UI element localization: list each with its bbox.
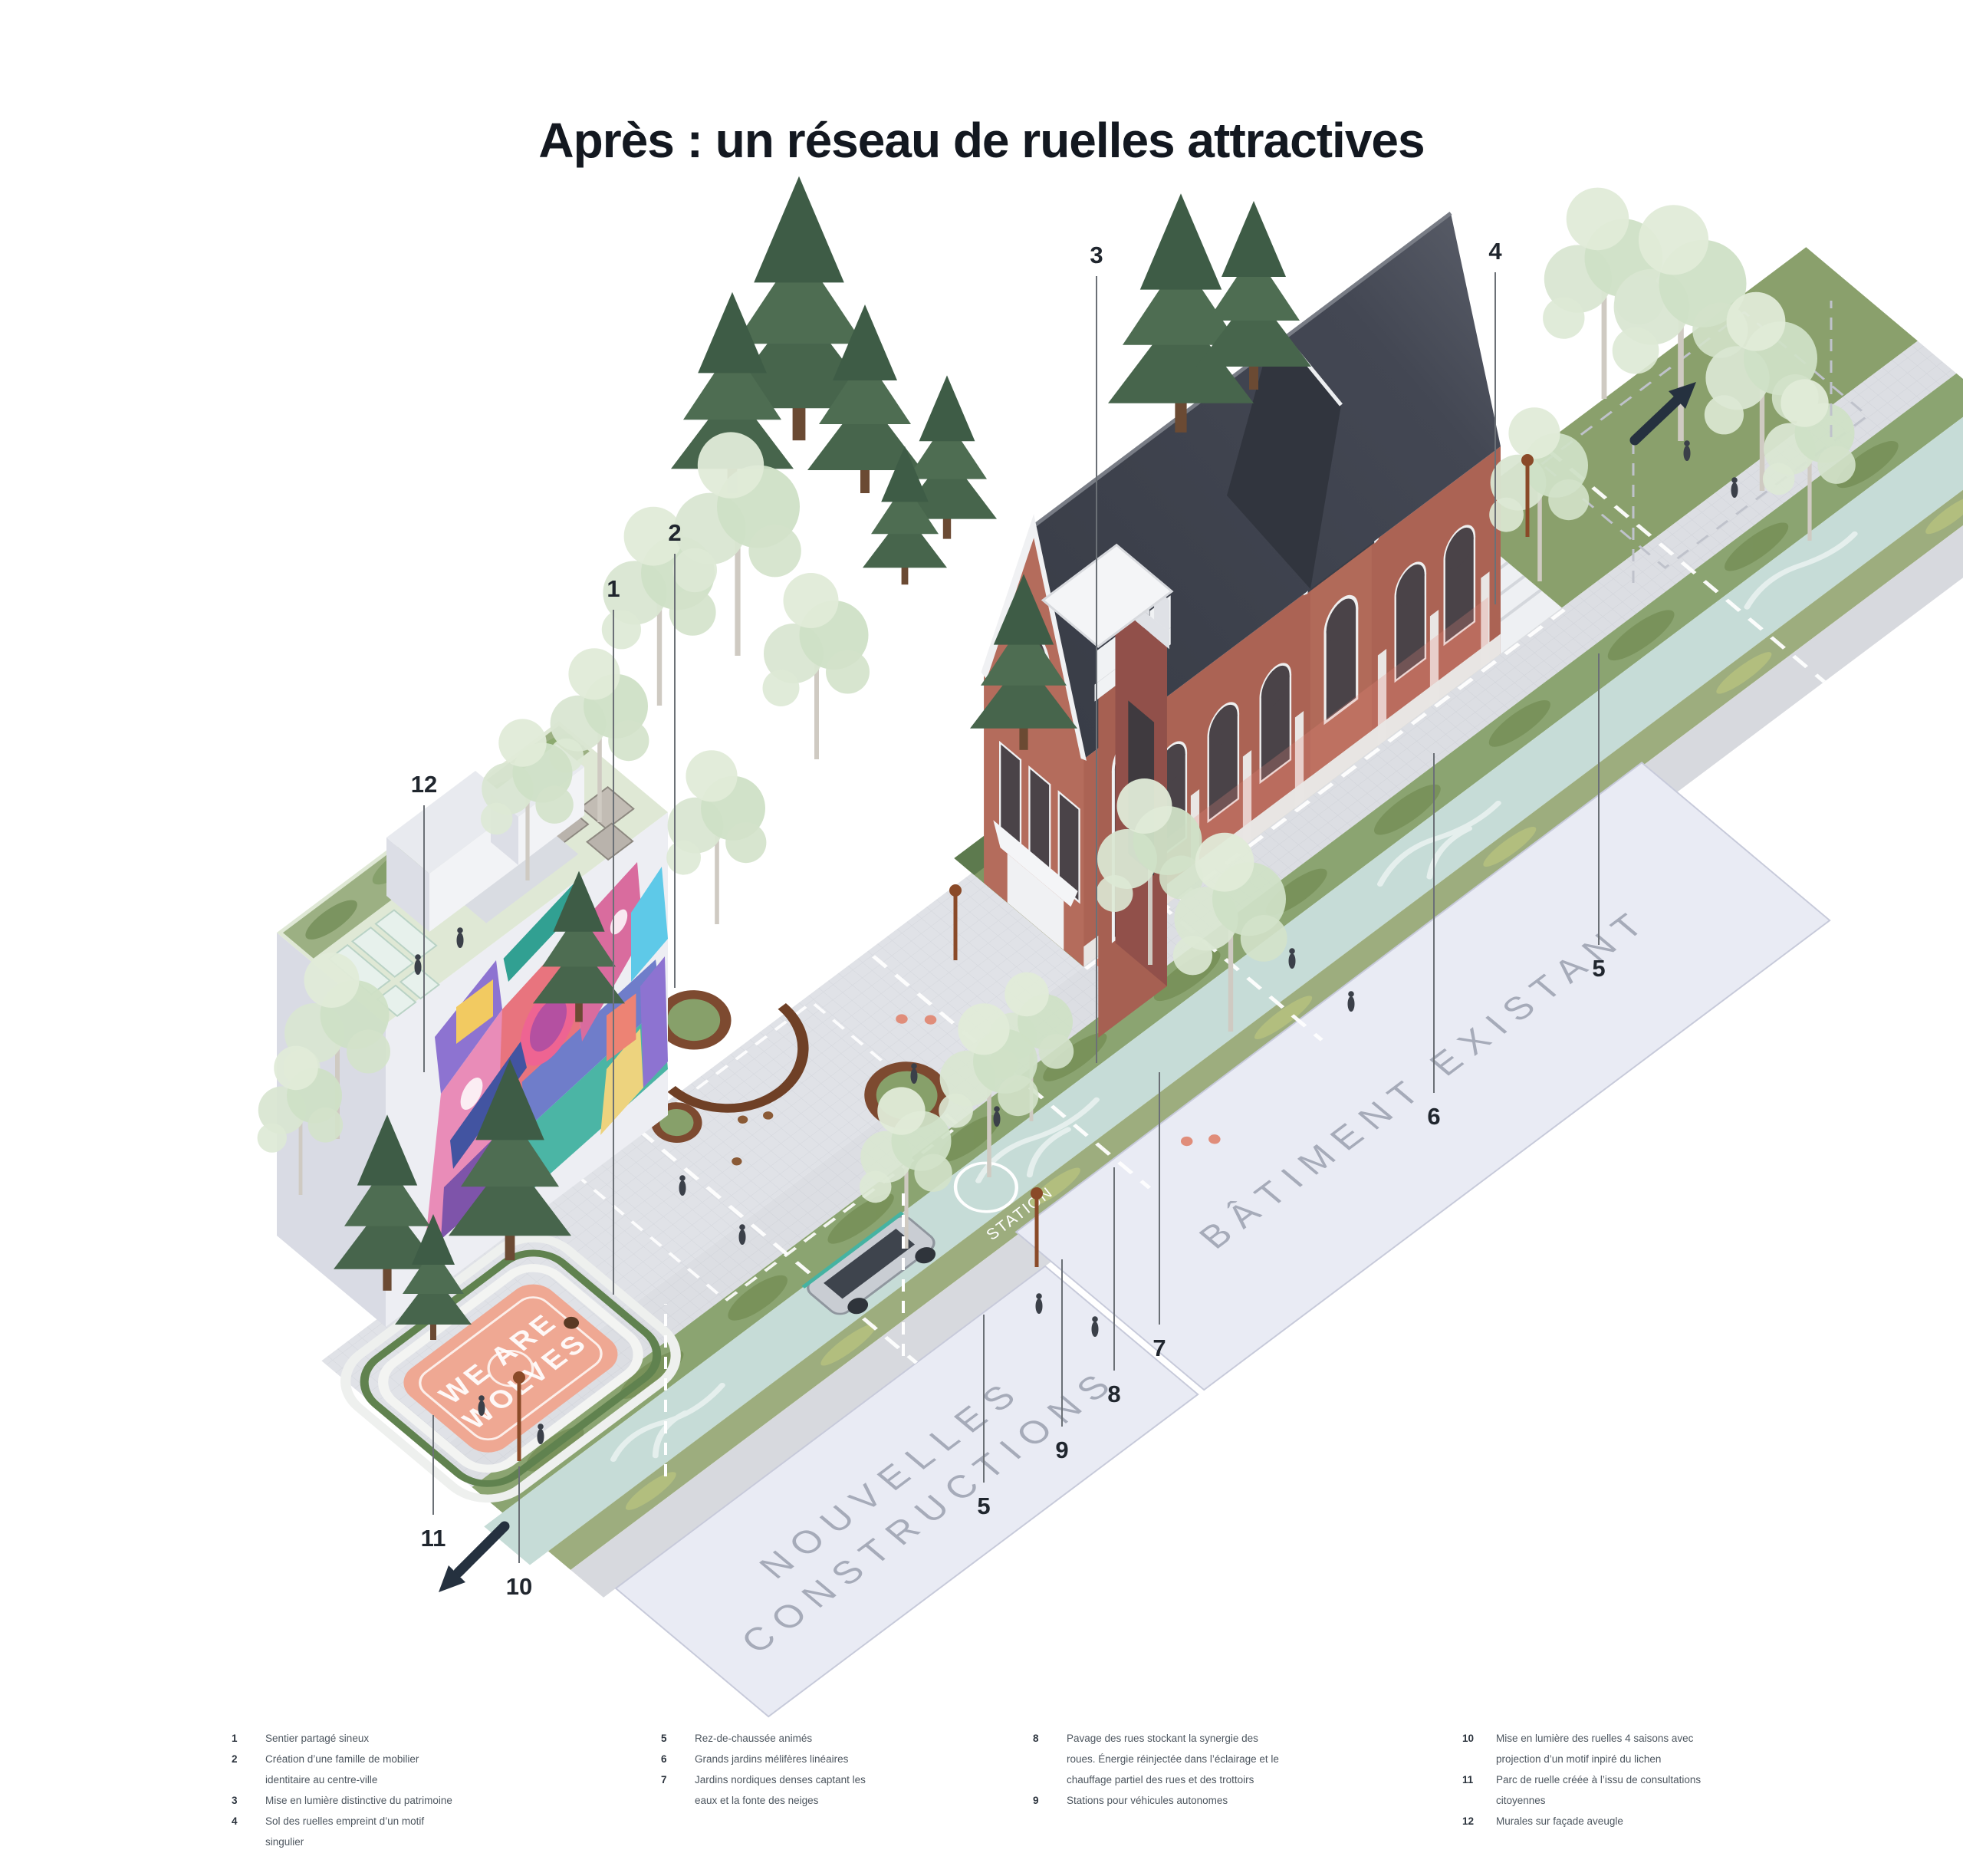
legend-item-8: 8 Pavage des rues stockant la synergie d…	[1033, 1728, 1309, 1790]
svg-text:7: 7	[1152, 1335, 1166, 1361]
legend-item-10: 10 Mise en lumière des ruelles 4 saisons…	[1462, 1728, 1746, 1769]
legend-text: Mise en lumière distinctive du patrimoin…	[265, 1790, 452, 1811]
scene-illustration: BÂTIMENT EXISTANT NOUVELLES CONSTRUCTION…	[0, 0, 1963, 1876]
svg-text:5: 5	[977, 1493, 990, 1519]
legend-text: roues. Énergie réinjectée dans l’éclaira…	[1067, 1749, 1279, 1769]
direction-arrow-southwest	[439, 1526, 505, 1592]
legend-column-1: 1 Sentier partagé sineux 2 Création d’un…	[232, 1728, 492, 1852]
legend-num: 6	[661, 1749, 695, 1769]
legend-num: 10	[1462, 1728, 1496, 1769]
legend-text: eaux et la fonte des neiges	[695, 1790, 866, 1811]
svg-text:5: 5	[1592, 955, 1605, 982]
legend-num: 7	[661, 1769, 695, 1811]
svg-text:1: 1	[607, 575, 620, 602]
legend-item-7: 7 Jardins nordiques denses captant les e…	[661, 1769, 906, 1811]
svg-text:4: 4	[1488, 238, 1502, 265]
svg-text:12: 12	[411, 771, 437, 798]
legend-text: Stations pour véhicules autonomes	[1067, 1790, 1228, 1811]
legend-num: 9	[1033, 1790, 1067, 1811]
legend-column-4: 10 Mise en lumière des ruelles 4 saisons…	[1462, 1728, 1746, 1832]
legend-num: 8	[1033, 1728, 1067, 1790]
legend-text: Création d’une famille de mobilier	[265, 1749, 419, 1769]
legend-column-3: 8 Pavage des rues stockant la synergie d…	[1033, 1728, 1309, 1811]
legend-num: 5	[661, 1728, 695, 1749]
svg-text:11: 11	[421, 1525, 446, 1552]
legend-item-5: 5 Rez-de-chaussée animés	[661, 1728, 906, 1749]
legend-item-4: 4 Sol des ruelles empreint d’un motif si…	[232, 1811, 492, 1852]
legend-text: Murales sur façade aveugle	[1496, 1811, 1623, 1832]
svg-text:9: 9	[1055, 1437, 1068, 1463]
legend-text: Parc de ruelle créée à l’issu de consult…	[1496, 1769, 1701, 1790]
legend-text: singulier	[265, 1832, 424, 1852]
legend-item-3: 3 Mise en lumière distinctive du patrimo…	[232, 1790, 492, 1811]
legend-text: chauffage partiel des rues et des trotto…	[1067, 1769, 1279, 1790]
legend-text: Pavage des rues stockant la synergie des	[1067, 1728, 1279, 1749]
legend-text: Jardins nordiques denses captant les	[695, 1769, 866, 1790]
svg-text:10: 10	[506, 1573, 532, 1600]
legend-item-11: 11 Parc de ruelle créée à l’issu de cons…	[1462, 1769, 1746, 1811]
legend-num: 3	[232, 1790, 265, 1811]
legend-num: 2	[232, 1749, 265, 1790]
legend-num: 1	[232, 1728, 265, 1749]
legend-text: identitaire au centre-ville	[265, 1769, 419, 1790]
legend-num: 12	[1462, 1811, 1496, 1832]
svg-text:3: 3	[1090, 242, 1103, 268]
legend-text: Grands jardins mélifères linéaires	[695, 1749, 848, 1769]
svg-text:8: 8	[1107, 1381, 1120, 1407]
legend-item-12: 12 Murales sur façade aveugle	[1462, 1811, 1746, 1832]
legend-text: projection d’un motif inpiré du lichen	[1496, 1749, 1693, 1769]
legend-text: citoyennes	[1496, 1790, 1701, 1811]
legend-text: Rez-de-chaussée animés	[695, 1728, 812, 1749]
legend-item-9: 9 Stations pour véhicules autonomes	[1033, 1790, 1309, 1811]
svg-text:6: 6	[1427, 1103, 1440, 1130]
svg-text:2: 2	[668, 519, 681, 546]
legend-num: 4	[232, 1811, 265, 1852]
legend-text: Mise en lumière des ruelles 4 saisons av…	[1496, 1728, 1693, 1749]
legend-text: Sentier partagé sineux	[265, 1728, 369, 1749]
legend-item-2: 2 Création d’une famille de mobilier ide…	[232, 1749, 492, 1790]
legend-item-6: 6 Grands jardins mélifères linéaires	[661, 1749, 906, 1769]
legend-num: 11	[1462, 1769, 1496, 1811]
legend-column-2: 5 Rez-de-chaussée animés 6 Grands jardin…	[661, 1728, 906, 1811]
legend-text: Sol des ruelles empreint d’un motif	[265, 1811, 424, 1832]
legend-item-1: 1 Sentier partagé sineux	[232, 1728, 492, 1749]
